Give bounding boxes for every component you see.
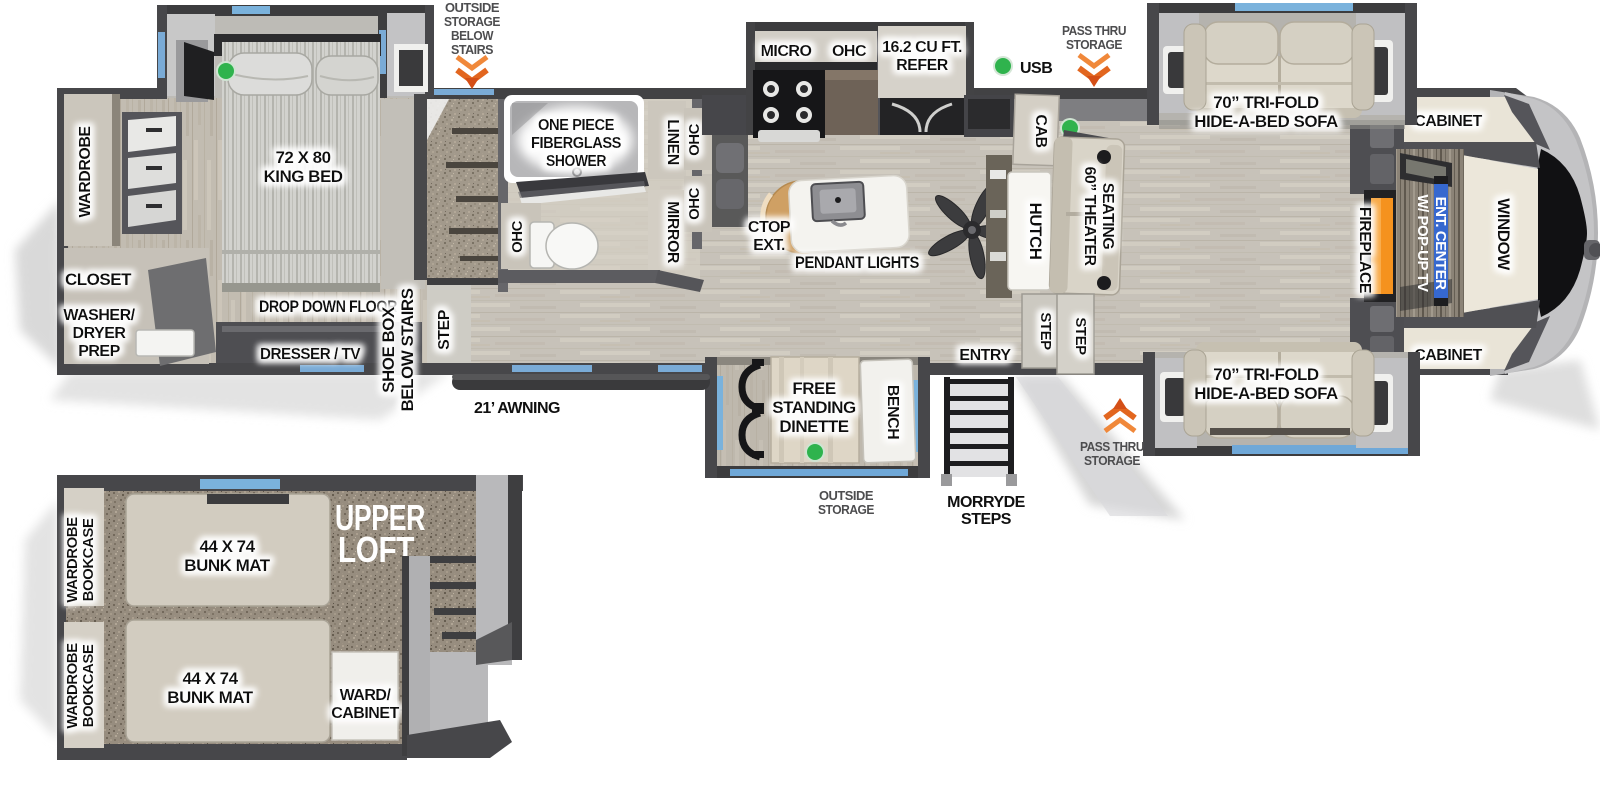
svg-text:WARDROBE: WARDROBE (64, 517, 81, 603)
svg-text:DINETTE: DINETTE (779, 417, 848, 436)
svg-text:OHC: OHC (686, 123, 703, 156)
svg-text:ONE PIECE: ONE PIECE (538, 117, 615, 134)
svg-text:WARDROBE: WARDROBE (77, 126, 94, 218)
svg-text:PENDANT LIGHTS: PENDANT LIGHTS (795, 253, 919, 272)
svg-text:OHC: OHC (686, 187, 703, 220)
svg-text:STORAGE: STORAGE (1066, 37, 1123, 52)
svg-text:BELOW: BELOW (451, 28, 494, 43)
svg-text:CAB: CAB (1032, 114, 1049, 147)
svg-text:STORAGE: STORAGE (1084, 453, 1141, 468)
svg-text:FIBERGLASS: FIBERGLASS (531, 135, 622, 152)
svg-text:WARDROBE: WARDROBE (64, 643, 81, 729)
svg-text:WASHER/: WASHER/ (63, 307, 135, 324)
svg-text:WARD/: WARD/ (340, 687, 392, 704)
svg-text:REFER: REFER (896, 57, 949, 74)
svg-text:44 X 74: 44 X 74 (199, 537, 255, 556)
svg-text:STORAGE: STORAGE (818, 502, 875, 517)
svg-text:W/ POP-UP TV: W/ POP-UP TV (1414, 194, 1431, 292)
svg-text:STORAGE: STORAGE (444, 14, 501, 29)
svg-text:FREE: FREE (792, 379, 836, 398)
svg-text:OUTSIDE: OUTSIDE (819, 488, 874, 503)
svg-text:STAIRS: STAIRS (451, 42, 494, 57)
svg-text:CABINET: CABINET (331, 705, 399, 722)
svg-text:PASS THRU: PASS THRU (1062, 23, 1126, 38)
svg-text:CTOP: CTOP (748, 219, 791, 236)
svg-text:HUTCH: HUTCH (1026, 203, 1045, 260)
svg-text:OUTSIDE: OUTSIDE (445, 0, 500, 15)
svg-text:72 X 80: 72 X 80 (275, 148, 330, 167)
svg-text:DRYER: DRYER (73, 325, 127, 342)
svg-text:CABINET: CABINET (1414, 113, 1482, 130)
svg-text:BUNK MAT: BUNK MAT (167, 688, 254, 707)
svg-text:HIDE-A-BED SOFA: HIDE-A-BED SOFA (1194, 112, 1338, 131)
svg-text:FIREPLACE: FIREPLACE (1356, 207, 1373, 294)
svg-text:BUNK MAT: BUNK MAT (184, 556, 271, 575)
svg-text:BOOKCASE: BOOKCASE (80, 518, 97, 601)
svg-text:OHC: OHC (509, 220, 526, 253)
svg-text:44 X 74: 44 X 74 (182, 669, 238, 688)
svg-text:60” THEATER: 60” THEATER (1081, 166, 1098, 266)
svg-text:WINDOW: WINDOW (1494, 198, 1513, 271)
svg-text:STEP: STEP (1037, 312, 1054, 350)
svg-text:EXT.: EXT. (753, 237, 785, 254)
svg-text:STANDING: STANDING (772, 398, 856, 417)
svg-text:SEATING: SEATING (1099, 183, 1116, 249)
svg-text:USB: USB (1020, 60, 1052, 77)
svg-text:STEP: STEP (436, 309, 453, 350)
svg-text:HIDE-A-BED SOFA: HIDE-A-BED SOFA (1194, 384, 1338, 403)
svg-text:CABINET: CABINET (1414, 347, 1482, 364)
svg-text:BOOKCASE: BOOKCASE (80, 644, 97, 727)
svg-text:BELOW STAIRS: BELOW STAIRS (398, 288, 417, 411)
svg-text:ENTRY: ENTRY (959, 347, 1011, 364)
svg-text:MORRYDE: MORRYDE (947, 494, 1026, 511)
svg-text:STEPS: STEPS (961, 511, 1012, 528)
svg-text:SHOE BOX: SHOE BOX (379, 306, 398, 393)
svg-text:LINEN: LINEN (664, 119, 681, 165)
svg-text:OHC: OHC (832, 43, 867, 60)
svg-text:CLOSET: CLOSET (65, 270, 132, 289)
svg-text:PASS THRU: PASS THRU (1080, 439, 1144, 454)
svg-text:SHOWER: SHOWER (546, 153, 607, 170)
svg-text:KING BED: KING BED (263, 167, 342, 186)
svg-text:PREP: PREP (78, 343, 120, 360)
svg-text:STEP: STEP (1072, 317, 1089, 355)
svg-text:MICRO: MICRO (761, 43, 812, 60)
svg-text:ENT. CENTER: ENT. CENTER (1432, 197, 1449, 291)
svg-text:DROP DOWN FLOOR: DROP DOWN FLOOR (259, 297, 397, 316)
svg-text:21’ AWNING: 21’ AWNING (474, 400, 560, 417)
svg-text:16.2 CU FT.: 16.2 CU FT. (882, 39, 962, 56)
svg-text:DRESSER / TV: DRESSER / TV (260, 346, 361, 363)
svg-text:70” TRI-FOLD: 70” TRI-FOLD (1213, 365, 1319, 384)
svg-text:MIRROR: MIRROR (664, 201, 681, 264)
svg-text:BENCH: BENCH (884, 385, 901, 439)
svg-text:70” TRI-FOLD: 70” TRI-FOLD (1213, 93, 1319, 112)
